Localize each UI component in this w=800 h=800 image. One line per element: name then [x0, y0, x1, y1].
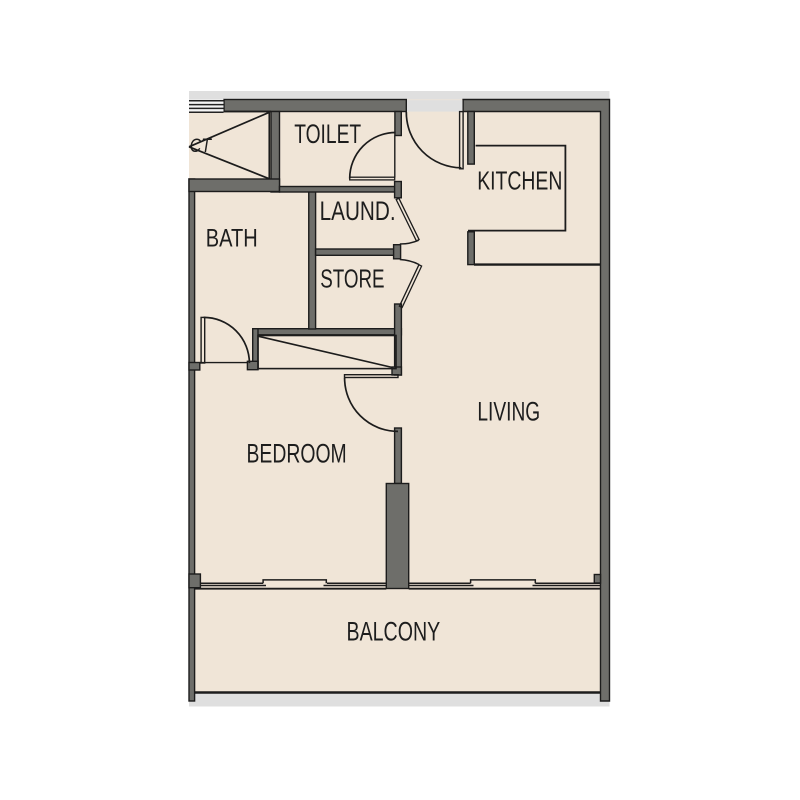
- svg-text:CT: CT: [190, 136, 213, 157]
- svg-text:BALCONY: BALCONY: [347, 616, 441, 646]
- svg-text:TOILET: TOILET: [294, 118, 361, 149]
- svg-text:LAUND.: LAUND.: [320, 196, 396, 226]
- svg-text:KITCHEN: KITCHEN: [477, 166, 562, 196]
- svg-text:BATH: BATH: [206, 225, 258, 252]
- svg-text:BEDROOM: BEDROOM: [247, 438, 347, 468]
- svg-text:LIVING: LIVING: [477, 396, 540, 427]
- svg-text:STORE: STORE: [320, 266, 384, 294]
